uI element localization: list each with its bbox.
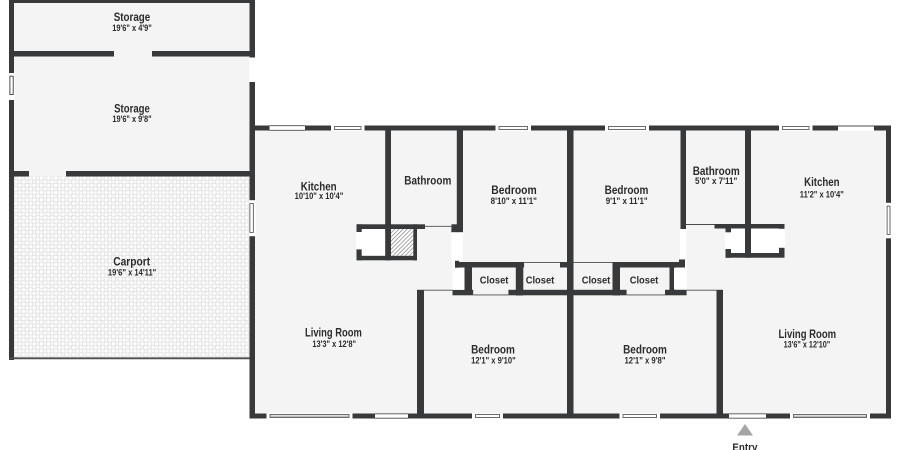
svg-text:11'2" x 10'4": 11'2" x 10'4"	[800, 190, 844, 201]
svg-text:Bedroom: Bedroom	[605, 183, 649, 197]
svg-text:12'1" x 9'10": 12'1" x 9'10"	[471, 356, 516, 367]
svg-text:Closet: Closet	[480, 275, 509, 286]
svg-text:12'1" x 9'8": 12'1" x 9'8"	[625, 356, 666, 367]
svg-text:Closet: Closet	[630, 275, 659, 286]
svg-text:Bedroom: Bedroom	[623, 342, 667, 356]
svg-text:Living Room: Living Room	[305, 326, 362, 340]
svg-text:19'6" x 4'9": 19'6" x 4'9"	[112, 23, 152, 34]
svg-text:Bedroom: Bedroom	[491, 183, 536, 197]
svg-text:19'6" x 9'8": 19'6" x 9'8"	[112, 114, 151, 125]
svg-text:Bathroom: Bathroom	[404, 174, 451, 188]
svg-text:9'1" x 11'1": 9'1" x 11'1"	[606, 196, 648, 207]
svg-text:Closet: Closet	[526, 275, 555, 286]
svg-text:Closet: Closet	[582, 275, 611, 286]
svg-text:13'3" x 12'8": 13'3" x 12'8"	[312, 339, 356, 350]
svg-text:5'0" x 7'11": 5'0" x 7'11"	[695, 176, 737, 187]
svg-text:Kitchen: Kitchen	[804, 175, 839, 189]
svg-text:8'10" x 11'1": 8'10" x 11'1"	[491, 196, 537, 207]
svg-text:10'10" x 10'4": 10'10" x 10'4"	[295, 191, 344, 202]
svg-text:Storage: Storage	[114, 10, 151, 24]
svg-text:Entry: Entry	[732, 442, 758, 450]
svg-text:13'6" x 12'10": 13'6" x 12'10"	[784, 340, 831, 351]
svg-text:19'6" x 14'11": 19'6" x 14'11"	[108, 267, 156, 278]
svg-text:Bedroom: Bedroom	[471, 342, 515, 356]
